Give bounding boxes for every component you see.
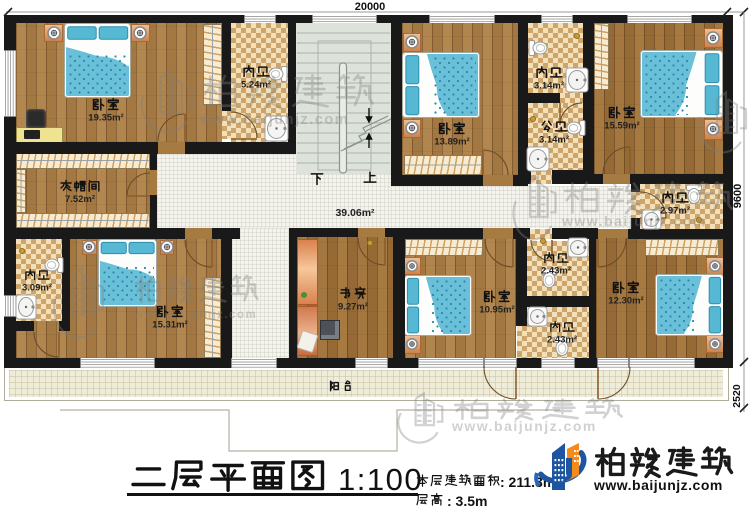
svg-text:13.89m²: 13.89m² xyxy=(434,137,469,148)
svg-text:39.06m²: 39.06m² xyxy=(335,207,375,219)
svg-text:2.43m²: 2.43m² xyxy=(541,266,571,277)
svg-text:20000: 20000 xyxy=(355,1,386,13)
svg-text:7.52m²: 7.52m² xyxy=(65,194,95,205)
svg-text:15.31m²: 15.31m² xyxy=(152,320,187,331)
svg-text:3.14m²: 3.14m² xyxy=(534,81,564,92)
svg-text:9.27m²: 9.27m² xyxy=(338,302,368,313)
svg-text:2.43m²: 2.43m² xyxy=(547,335,577,346)
svg-text:3.14m²: 3.14m² xyxy=(539,135,569,146)
svg-text:www.baijunjz.com: www.baijunjz.com xyxy=(199,112,349,128)
svg-text:www.baijunjz.com: www.baijunjz.com xyxy=(593,477,723,493)
svg-text:19.35m²: 19.35m² xyxy=(88,113,123,124)
svg-text:1:100: 1:100 xyxy=(338,462,423,497)
svg-text:15.59m²: 15.59m² xyxy=(604,121,639,132)
svg-text:2520: 2520 xyxy=(731,384,743,408)
svg-text:9600: 9600 xyxy=(732,184,744,208)
svg-text:3.09m²: 3.09m² xyxy=(22,283,52,294)
svg-text:www.baijunjz.com: www.baijunjz.com xyxy=(451,418,597,434)
svg-text:5.24m²: 5.24m² xyxy=(241,80,271,91)
svg-text:10.95m²: 10.95m² xyxy=(479,305,514,316)
svg-text:12.30m²: 12.30m² xyxy=(608,296,643,307)
svg-text:: 3.5m: : 3.5m xyxy=(447,493,487,509)
svg-text:2.97m²: 2.97m² xyxy=(660,206,690,217)
